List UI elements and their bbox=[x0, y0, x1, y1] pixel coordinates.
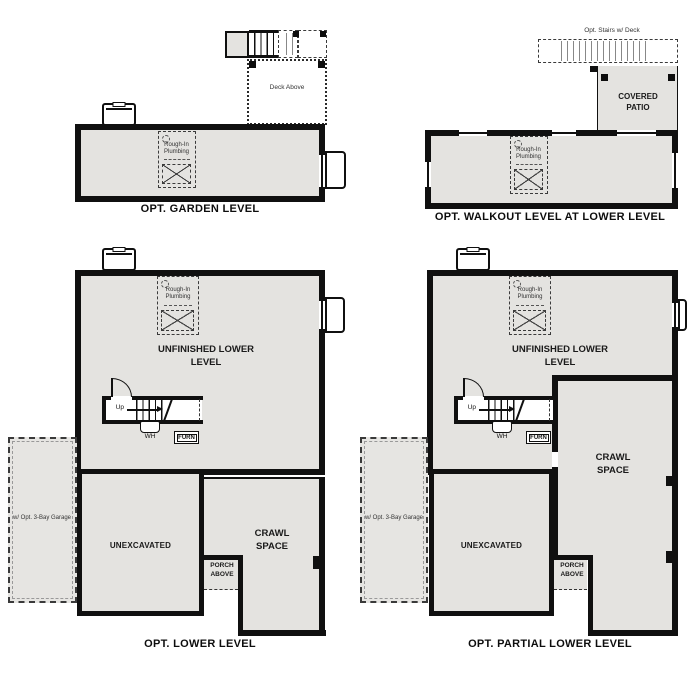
window-well bbox=[102, 248, 136, 271]
window bbox=[458, 130, 488, 136]
walkout-level-room bbox=[425, 130, 678, 209]
crawl-space-area bbox=[593, 555, 672, 635]
garden-level-room bbox=[75, 124, 325, 202]
window bbox=[551, 130, 577, 136]
porch-above-label: PORCH ABOVE bbox=[200, 562, 244, 580]
porch-dashed-line bbox=[204, 589, 238, 590]
rough-in-plumbing-area: Rough-In Plumbing bbox=[157, 276, 199, 335]
furnace: FURN bbox=[174, 431, 199, 444]
stair-dashed-edge bbox=[199, 399, 200, 421]
rough-in-plumbing-area: Rough-In Plumbing bbox=[510, 136, 548, 194]
rough-in-label: Rough-In Plumbing bbox=[160, 287, 196, 301]
window-well bbox=[325, 151, 346, 189]
deck-above-label: Deck Above bbox=[267, 84, 307, 92]
plan-title-walkout-level: OPT. WALKOUT LEVEL AT LOWER LEVEL bbox=[420, 211, 680, 223]
window-well bbox=[456, 248, 490, 271]
deck-post bbox=[318, 61, 325, 68]
window bbox=[672, 152, 678, 189]
porch-dashed-line bbox=[554, 589, 587, 590]
tub-icon bbox=[162, 164, 191, 184]
opt-stairs-deck-label: Opt. Stairs w/ Deck bbox=[560, 27, 664, 35]
rough-in-label: Rough-In Plumbing bbox=[512, 147, 545, 161]
unexcavated-label: UNEXCAVATED bbox=[92, 541, 189, 552]
deck-post bbox=[320, 31, 326, 37]
tub-icon bbox=[161, 310, 194, 331]
water-heater bbox=[140, 421, 160, 433]
unexcavated-label: UNEXCAVATED bbox=[443, 541, 540, 552]
wall-pier bbox=[666, 476, 673, 486]
up-arrow bbox=[479, 409, 509, 411]
furnace-label: FURN bbox=[177, 434, 197, 442]
up-label: Up bbox=[458, 404, 476, 412]
crawl-bottom-wall bbox=[588, 630, 678, 636]
furnace-label: FURN bbox=[529, 434, 549, 442]
tub-icon bbox=[514, 169, 543, 190]
covered-patio-label: COVERED PATIO bbox=[607, 92, 669, 114]
plan-title-partial-lower-level: OPT. PARTIAL LOWER LEVEL bbox=[430, 638, 670, 650]
rough-in-label: Rough-In Plumbing bbox=[512, 287, 548, 301]
window-well bbox=[102, 103, 136, 126]
water-heater-label: WH bbox=[136, 433, 164, 441]
rough-in-label: Rough-In Plumbing bbox=[160, 142, 193, 156]
wall-pier bbox=[313, 556, 319, 569]
unfinished-lower-level-label: UNFINISHED LOWER LEVEL bbox=[500, 344, 620, 370]
crawl-top-line bbox=[204, 477, 319, 479]
up-arrow-head bbox=[509, 406, 515, 412]
fixture-icon bbox=[164, 305, 192, 306]
crawl-right-wall bbox=[319, 477, 325, 636]
patio-post bbox=[668, 74, 675, 81]
porch-above-label: PORCH ABOVE bbox=[550, 562, 594, 580]
crawl-bottom-wall bbox=[238, 630, 326, 636]
water-heater-label: WH bbox=[488, 433, 516, 441]
crawl-top-wall bbox=[552, 375, 678, 381]
plan-title-lower-level: OPT. LOWER LEVEL bbox=[100, 638, 300, 650]
fixture-icon bbox=[516, 305, 544, 306]
water-heater bbox=[492, 421, 512, 433]
tub-icon bbox=[513, 310, 546, 331]
crawl-wall-opening bbox=[552, 452, 558, 467]
plan-title-garden-level: OPT. GARDEN LEVEL bbox=[100, 203, 300, 215]
deck-post bbox=[249, 61, 256, 68]
patio-post bbox=[601, 74, 608, 81]
opt-garage-label: w/ Opt. 3-Bay Garage bbox=[362, 515, 426, 522]
unfinished-lower-level-room bbox=[75, 270, 325, 475]
crawl-space-label: CRAWL SPACE bbox=[583, 452, 643, 478]
fixture-icon bbox=[164, 159, 190, 160]
stairs-treads-dashed bbox=[556, 41, 650, 61]
stair-dashed-edge bbox=[549, 399, 550, 421]
up-arrow bbox=[127, 409, 157, 411]
wall-pier bbox=[666, 551, 673, 563]
stair-landing bbox=[225, 31, 249, 58]
crawl-space-area bbox=[243, 560, 319, 630]
stairs-treads bbox=[249, 30, 278, 58]
deck-post bbox=[293, 31, 299, 37]
up-arrow-head bbox=[157, 406, 163, 412]
window bbox=[425, 161, 431, 188]
furnace: FURN bbox=[526, 431, 551, 444]
deck-above-outline bbox=[247, 59, 327, 125]
crawl-space-label: CRAWL SPACE bbox=[242, 528, 302, 554]
up-label: Up bbox=[106, 404, 124, 412]
window-well bbox=[678, 299, 687, 331]
window-well bbox=[325, 297, 345, 333]
patio-door bbox=[616, 130, 657, 136]
unfinished-lower-level-label: UNFINISHED LOWER LEVEL bbox=[146, 344, 266, 370]
rough-in-plumbing-area: Rough-In Plumbing bbox=[509, 276, 551, 335]
floor-plan-sheet: Deck Above Rough-In Plumbing OPT. GARDEN… bbox=[0, 0, 687, 687]
fixture-icon bbox=[516, 164, 542, 165]
opt-garage-label: w/ Opt. 3-Bay Garage bbox=[10, 515, 74, 522]
rough-in-plumbing-area: Rough-In Plumbing bbox=[158, 131, 196, 188]
